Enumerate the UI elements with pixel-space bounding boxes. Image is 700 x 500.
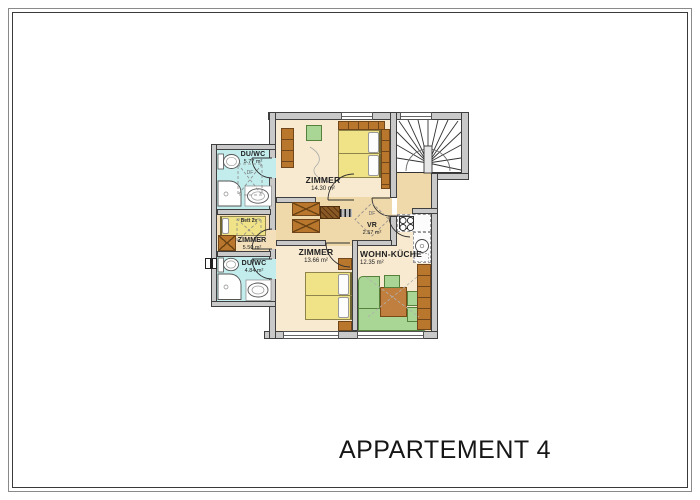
window-bottom-right [357, 331, 424, 339]
nightstand-south [338, 321, 352, 331]
chair-dining-top [384, 275, 400, 288]
label-bedroom-small: ZIMMER 5.50 m² [238, 237, 267, 251]
pillow [338, 297, 349, 318]
closet-hall-1 [292, 202, 320, 216]
wardrobe-top-bedroom-east [381, 129, 390, 189]
wall-hatch [340, 209, 352, 217]
label-bed-2x: Bett 2x [241, 218, 258, 224]
pillow [368, 155, 379, 176]
vent-bath-bottom [205, 258, 217, 269]
room-area: 13.66 m² [299, 258, 334, 265]
room-name: VR [363, 222, 382, 230]
label-bedroom-top: ZIMMER 14.30 m² [306, 176, 341, 193]
door-gap-bath-top [269, 158, 276, 178]
label-bath-bottom: DU/WC 4.84 m² [242, 260, 267, 274]
chair-top-bedroom [306, 125, 322, 141]
label-bedroom-bottom: ZIMMER 13.66 m² [299, 248, 334, 265]
pillow [368, 132, 379, 153]
room-area: 5.77 m² [241, 159, 266, 165]
room-stairs-floor [397, 120, 461, 173]
wall-annex-left [211, 144, 217, 307]
room-name: ZIMMER [299, 248, 334, 258]
mattress-divider [338, 153, 381, 154]
mattress-divider [305, 295, 352, 296]
wall-stairs-left [390, 112, 397, 198]
window-stairs [400, 112, 432, 120]
wall-bedroom-bottom-north [276, 240, 326, 246]
room-name: ZIMMER [238, 237, 267, 245]
room-area: 12.35 m² [360, 260, 422, 267]
cabinet-living [417, 264, 431, 330]
label-roof-window-bath: DF [247, 170, 254, 176]
nightstand-north [338, 258, 352, 270]
label-bath-top: DU/WC 5.77 m² [241, 151, 266, 165]
chimney [320, 206, 340, 219]
wardrobe-top-bedroom-north [338, 121, 385, 130]
room-name: WOHN-KÜCHE [360, 250, 422, 260]
label-roof-window-vr: DF [369, 211, 376, 217]
room-name: DU/WC [241, 151, 266, 159]
room-name: DU/WC [242, 260, 267, 268]
window-bottom-left [283, 331, 339, 339]
page-title: APPARTEMENT 4 [339, 436, 551, 465]
room-area: 14.30 m² [306, 186, 341, 193]
dresser-top-bedroom [281, 128, 294, 168]
wall-annex-top [211, 144, 276, 150]
window-bedroom-top [341, 112, 373, 120]
label-vestibule: VR 2.57 m² [363, 222, 382, 236]
wall-vestibule-south [352, 240, 392, 246]
dining-table [380, 287, 407, 317]
label-living-kitchen: WOHN-KÜCHE 12.35 m² [360, 250, 422, 267]
room-name: ZIMMER [306, 176, 341, 186]
closet-hall-2 [292, 219, 320, 233]
wall-annex-divider-2 [217, 251, 271, 257]
door-gap-bedroom-small [269, 230, 276, 249]
pillow [222, 218, 229, 234]
pillow [338, 274, 349, 295]
floor-plan-page: DU/WC 5.77 m² DF ZIMMER 14.30 m² Bett 2x… [0, 0, 700, 500]
wall-annex-bottom [211, 301, 276, 307]
wardrobe-small-room [218, 235, 236, 251]
room-area: 4.84 m² [242, 268, 267, 274]
door-gap-bath-bottom [269, 259, 276, 279]
wall-annex-divider-1 [217, 209, 271, 215]
stove [399, 216, 414, 229]
wall-right-lower [431, 173, 438, 339]
wall-right-stairs [461, 112, 469, 180]
room-area: 5.50 m² [238, 245, 267, 251]
room-area: 2.57 m² [363, 230, 382, 236]
